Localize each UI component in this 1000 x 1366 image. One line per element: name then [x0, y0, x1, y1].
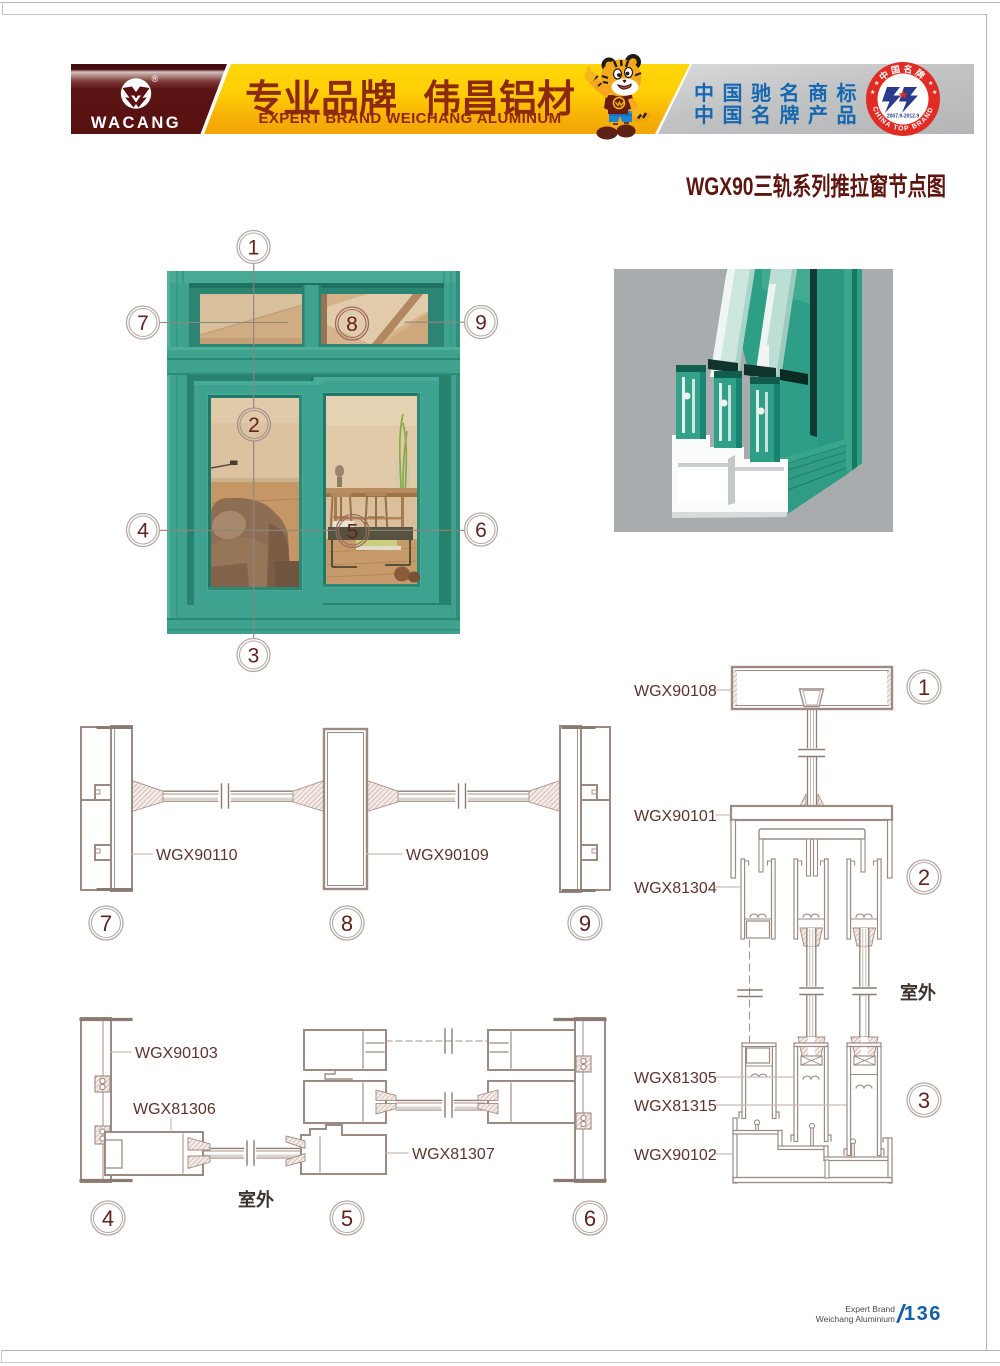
svg-text:1: 1	[918, 675, 930, 700]
svg-text:8: 8	[341, 911, 353, 936]
svg-text:WGX81304: WGX81304	[634, 880, 717, 897]
svg-text:2: 2	[918, 865, 930, 890]
svg-text:5: 5	[341, 1206, 353, 1231]
svg-text:9: 9	[475, 312, 487, 335]
svg-text:WGX90108: WGX90108	[634, 683, 717, 700]
svg-text:1: 1	[248, 237, 260, 260]
svg-text:室外: 室外	[900, 982, 936, 1003]
svg-text:7: 7	[137, 312, 149, 335]
svg-text:WGX81307: WGX81307	[412, 1146, 495, 1163]
svg-text:WGX90101: WGX90101	[634, 808, 717, 825]
svg-text:室外: 室外	[238, 1189, 274, 1210]
svg-text:7: 7	[100, 911, 112, 936]
svg-text:6: 6	[475, 519, 487, 542]
svg-text:2: 2	[248, 414, 260, 437]
svg-text:WGX81305: WGX81305	[634, 1070, 717, 1087]
svg-text:WGX90110: WGX90110	[156, 847, 238, 864]
svg-text:WGX81306: WGX81306	[133, 1101, 216, 1118]
svg-text:8: 8	[346, 313, 358, 336]
svg-text:3: 3	[248, 645, 260, 668]
svg-text:4: 4	[102, 1206, 114, 1231]
svg-text:WGX90109: WGX90109	[406, 847, 489, 864]
svg-text:5: 5	[347, 521, 359, 544]
svg-text:4: 4	[137, 520, 149, 543]
svg-text:9: 9	[579, 911, 591, 936]
svg-text:3: 3	[918, 1088, 930, 1113]
svg-text:WGX90103: WGX90103	[135, 1045, 218, 1062]
svg-text:6: 6	[584, 1206, 596, 1231]
svg-text:WGX81315: WGX81315	[634, 1098, 717, 1115]
svg-text:WGX90102: WGX90102	[634, 1147, 717, 1164]
